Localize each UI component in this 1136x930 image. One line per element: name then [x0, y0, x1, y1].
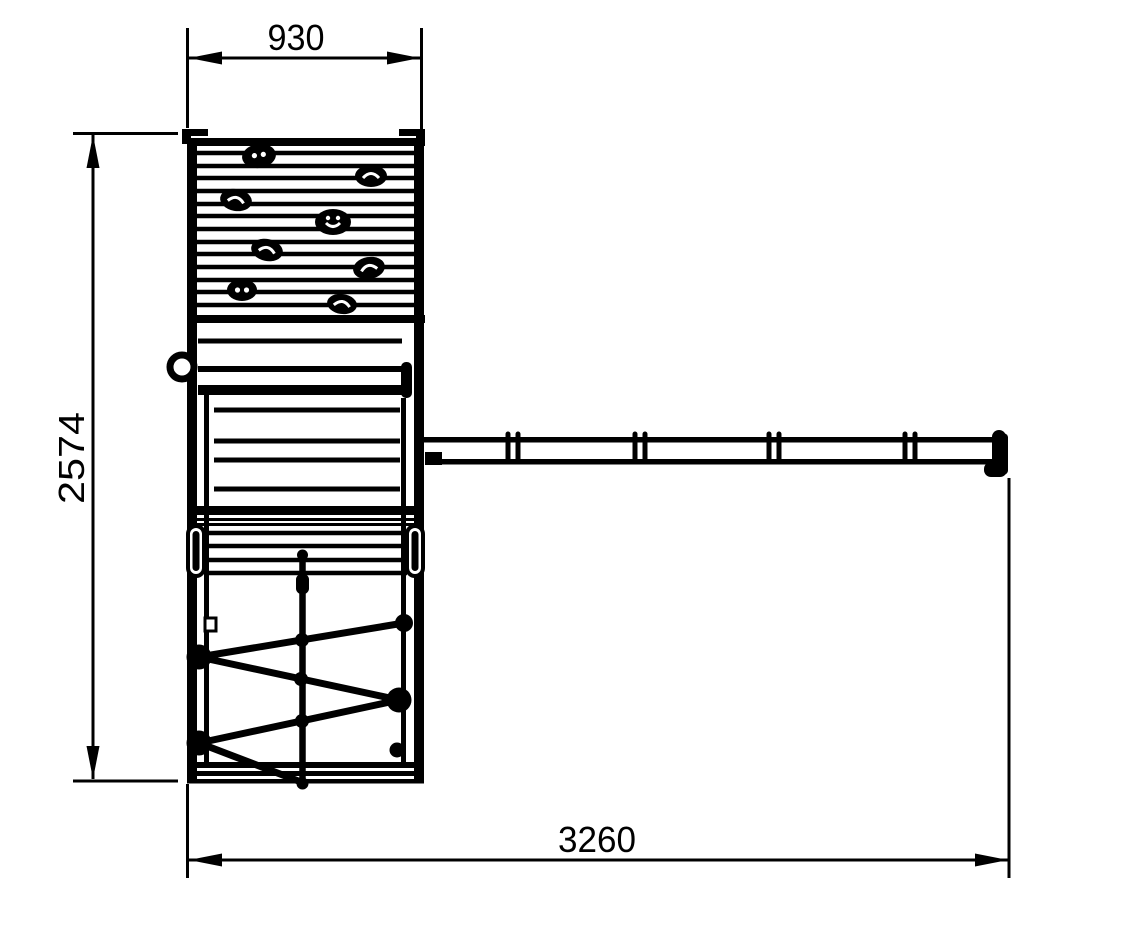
climbing-hold	[326, 292, 358, 316]
base-beam	[187, 779, 424, 784]
arrowhead-right	[387, 52, 420, 65]
net-knot	[395, 614, 413, 632]
climbing-wall	[182, 129, 425, 323]
net-corner-fitting	[390, 743, 405, 758]
swing-beam	[424, 430, 1008, 477]
play-tower	[170, 129, 425, 790]
rope-end-knot	[297, 550, 308, 561]
base-beam	[187, 762, 424, 768]
dimension-label-bottom: 3260	[558, 819, 636, 860]
dimension-top-930: 930	[188, 17, 422, 133]
climbing-hold	[355, 165, 387, 187]
arrowhead-up	[87, 135, 100, 168]
swing-hanger	[767, 432, 782, 462]
arrowhead-right	[975, 854, 1008, 867]
tower-post-left	[187, 139, 197, 783]
deck-floor-lines	[187, 520, 424, 525]
arrowhead-left	[189, 854, 222, 867]
beam-top-edge	[424, 437, 1008, 443]
arrowhead-down	[87, 746, 100, 779]
climbing-hold	[351, 254, 386, 281]
climbing-hold	[315, 209, 351, 235]
tower-post-right	[414, 139, 424, 783]
dimension-left-2574: 2574	[51, 134, 178, 782]
wall-bottom-edge	[187, 315, 425, 323]
wall-top-edge	[187, 138, 425, 146]
net-knot	[295, 714, 309, 728]
swing-hanger	[633, 432, 648, 462]
side-bracket-right-core	[412, 531, 419, 571]
grab-ring	[170, 355, 194, 379]
beam-mount-bracket	[425, 452, 442, 465]
technical-drawing-canvas: 930 2574 3260	[0, 0, 1136, 930]
net-anchor-plate	[205, 618, 216, 631]
base-beam	[187, 771, 424, 776]
net-knot	[187, 645, 212, 670]
arrowhead-left	[189, 52, 222, 65]
net-knot	[294, 672, 308, 686]
climbing-net	[187, 550, 425, 790]
net-knot	[295, 633, 309, 647]
climbing-hold	[227, 279, 257, 301]
wall-boards	[214, 410, 400, 489]
dimension-label-left: 2574	[51, 412, 92, 504]
deck-floor-edge	[187, 506, 424, 515]
rope-tensioner	[296, 574, 309, 594]
playset-dimension-drawing: 930 2574 3260	[0, 0, 1136, 930]
net-knot	[387, 688, 412, 713]
swing-hanger	[903, 432, 918, 462]
net-knot	[187, 731, 212, 756]
swing-hanger	[506, 432, 521, 462]
deck-edge-board	[198, 385, 408, 395]
dimension-label-top: 930	[268, 17, 325, 58]
side-bracket-left-core	[193, 531, 200, 571]
